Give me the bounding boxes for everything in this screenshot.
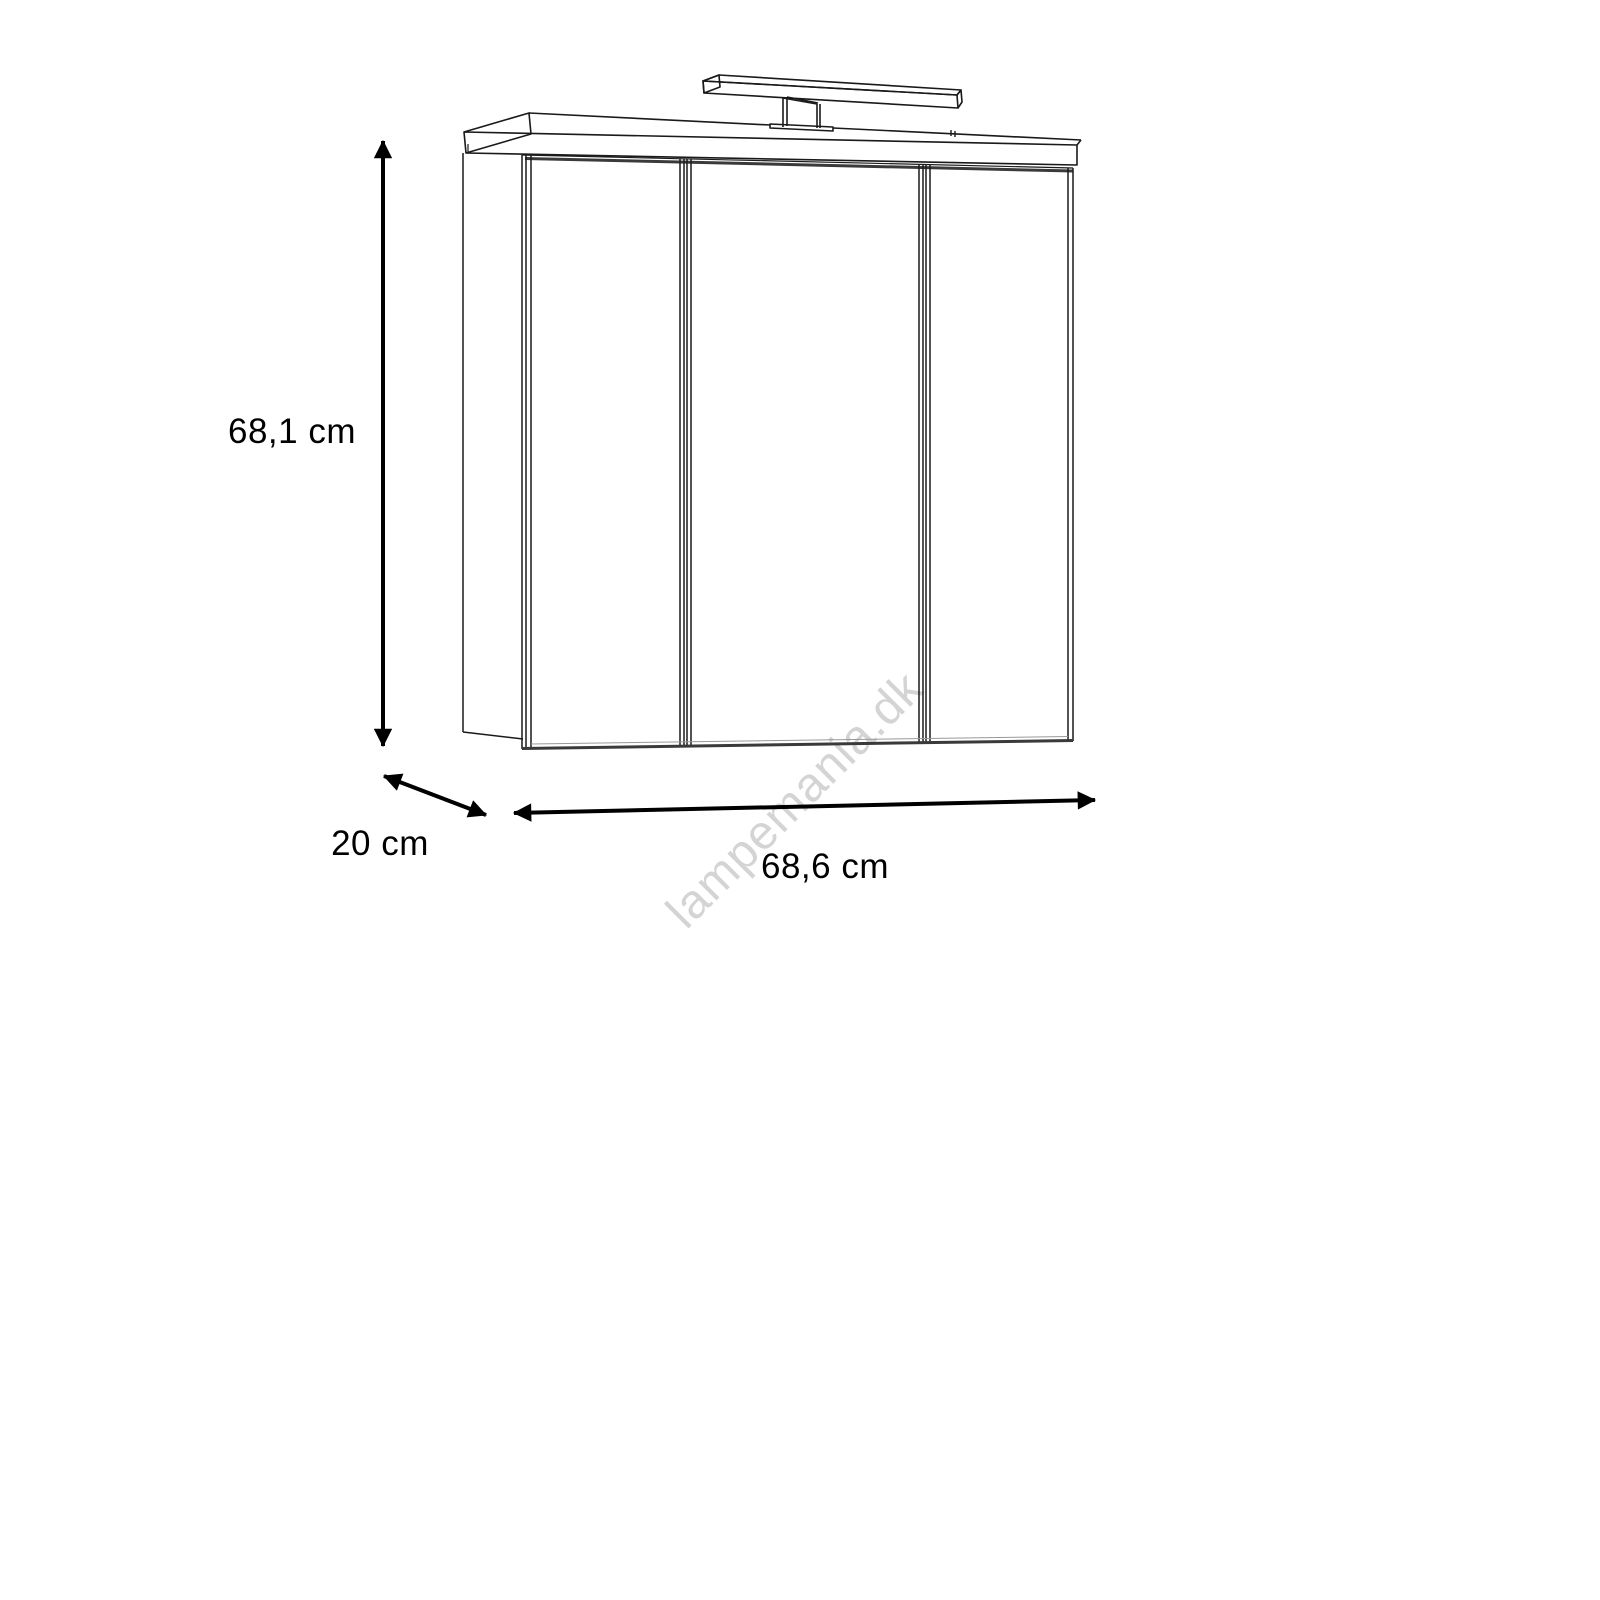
door-left-edges xyxy=(522,155,531,749)
door-gap-2 xyxy=(919,164,930,743)
height-dimension-label: 68,1 cm xyxy=(228,412,356,452)
door-top-shadow xyxy=(525,159,1073,172)
diagram-canvas: lampemania.dk xyxy=(0,0,1600,1600)
left-side-panel xyxy=(463,153,523,739)
dimension-arrows xyxy=(383,141,1095,815)
door-gap-1 xyxy=(680,159,691,747)
door-right-edges xyxy=(1068,168,1073,741)
cabinet-body xyxy=(463,153,1073,749)
lamp-mount-plate xyxy=(770,124,833,131)
width-arrow xyxy=(514,800,1095,813)
lamp-stem xyxy=(783,97,820,128)
width-dimension-label: 68,6 cm xyxy=(761,847,889,887)
top-lamp xyxy=(703,75,962,137)
cabinet-top-panel xyxy=(464,113,1081,165)
door-bottom-edge xyxy=(522,741,1073,749)
depth-arrow xyxy=(384,776,486,815)
lamp-bar xyxy=(703,75,962,108)
cabinet-drawing xyxy=(0,0,1600,1600)
depth-dimension-label: 20 cm xyxy=(331,824,429,864)
